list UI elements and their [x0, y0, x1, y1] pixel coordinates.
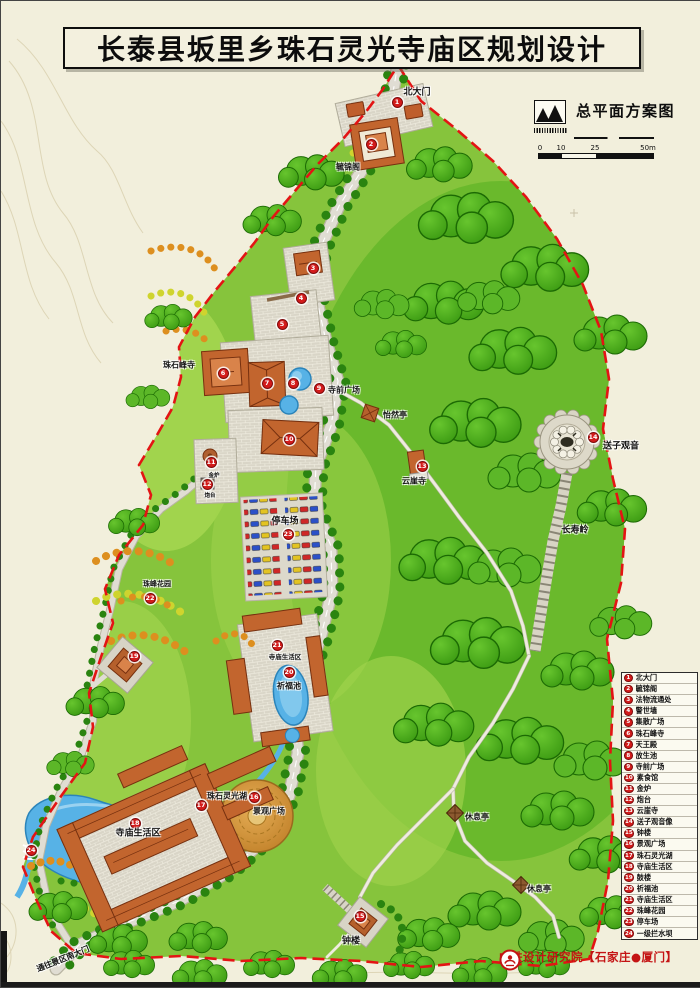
legend-item-number: 11: [624, 785, 634, 794]
scale-bar: 0 10 25 50m: [538, 144, 656, 160]
legend-item-number: 7: [624, 740, 633, 749]
footer: 中铁设计研究院【石家庄●厦门】: [499, 949, 678, 965]
guanyin-statue: [561, 437, 574, 447]
legend-item: 12 炮台: [622, 795, 697, 806]
design-credit: 中铁设计研究院【石家庄●厦门】: [499, 949, 678, 965]
legend-item-label: 珠峰花园: [637, 906, 666, 916]
legend-item: 22 珠峰花园: [622, 906, 697, 917]
legend-item-label: 放生池: [636, 751, 658, 761]
legend-item-number: 10: [624, 774, 634, 783]
north-gate-tower: [404, 104, 423, 120]
legend-item-number: 13: [624, 807, 634, 816]
sheet-title-box: 长泰县坂里乡珠石灵光寺庙区规划设计: [63, 27, 641, 69]
vegetarian-hall: [261, 420, 319, 457]
fawu-building: [294, 250, 323, 275]
scale-bar-segments: [538, 153, 654, 159]
legend-item-label: 天王殿: [636, 740, 658, 750]
legend-item: 3 法物流通处: [622, 695, 697, 706]
legend-item-label: 鼓楼: [637, 873, 651, 883]
legend-item-number: 17: [624, 851, 634, 860]
legend-item: 7 天王殿: [622, 740, 697, 751]
legend-item-number: 6: [624, 729, 633, 738]
legend-item-label: 一级拦水坝: [637, 929, 673, 939]
institute-logo-icon: [534, 100, 566, 124]
legend-item-label: 寺前广场: [636, 762, 665, 772]
page-title: 长泰县坂里乡珠石灵光寺庙区规划设计: [97, 28, 607, 68]
logo-caption: [534, 128, 567, 133]
legend-item-number: 9: [624, 763, 633, 772]
legend-item-number: 1: [624, 674, 633, 683]
scale-tick: 50m: [640, 144, 656, 152]
legend-item: 11 金炉: [622, 784, 697, 795]
legend-item: 21 寺庙生活区: [622, 895, 697, 906]
legend-item: 24 一级拦水坝: [622, 928, 697, 939]
legend-item-label: 珠石灵光湖: [637, 851, 673, 861]
legend-item-label: 毓锦阁: [636, 684, 658, 694]
legend-item-number: 12: [624, 796, 634, 805]
sheet-edge-bottom: [1, 982, 700, 987]
legend-item-label: 金炉: [637, 784, 651, 794]
legend-item: 19 鼓楼: [622, 873, 697, 884]
legend-item-label: 钟楼: [637, 828, 651, 838]
legend-item-label: 停车场: [637, 917, 659, 927]
legend-item: 14 送子观音像: [622, 817, 697, 828]
map-legend: 1 北大门 2 毓锦阁 3 法物流通处 4 警世墙 5 集散广场 6 珠石峰寺 …: [621, 672, 698, 940]
legend-item: 9 寺前广场: [622, 762, 697, 773]
legend-item-number: 4: [624, 707, 633, 716]
legend-item-label: 祈福池: [637, 884, 659, 894]
sheet-edge-left: [1, 931, 7, 987]
legend-item-number: 18: [624, 862, 634, 871]
legend-item-number: 5: [624, 718, 633, 727]
plan-header: 总平面方案图: [534, 100, 694, 139]
legend-item-label: 珠石峰寺: [636, 729, 665, 739]
plan-type-label: 总平面方案图: [576, 100, 675, 121]
legend-item-number: 8: [624, 751, 633, 760]
legend-item-number: 15: [624, 829, 634, 838]
legend-item-number: 19: [624, 873, 634, 882]
legend-item: 18 寺庙生活区: [622, 862, 697, 873]
tianwang-hall: [248, 361, 286, 406]
legend-item-label: 云崖寺: [637, 806, 659, 816]
legend-item-label: 北大门: [636, 673, 658, 683]
legend-item-number: 14: [624, 818, 634, 827]
legend-item: 4 警世墙: [622, 706, 697, 717]
legend-item: 16 景观广场: [622, 839, 697, 850]
legend-item-number: 22: [624, 907, 634, 916]
legend-item: 6 珠石峰寺: [622, 728, 697, 739]
scale-tick: 25: [591, 144, 600, 152]
legend-item-number: 23: [624, 918, 634, 927]
legend-item-label: 送子观音像: [637, 817, 673, 827]
parking-lot: [240, 493, 327, 601]
zhushi-temple: [202, 348, 251, 395]
legend-item: 13 云崖寺: [622, 806, 697, 817]
legend-item-number: 3: [624, 696, 633, 705]
legend-item: 10 素食馆: [622, 773, 697, 784]
legend-item-label: 集散广场: [636, 717, 665, 727]
scale-tick: 10: [557, 144, 566, 152]
legend-item-number: 21: [624, 896, 634, 905]
legend-item: 1 北大门: [622, 673, 697, 684]
guanyin-plaza: [534, 410, 600, 474]
scale-tick: 0: [538, 144, 542, 152]
legend-item: 20 祈福池: [622, 884, 697, 895]
legend-item-label: 寺庙生活区: [637, 895, 673, 905]
yujin-pavilion: [350, 118, 405, 171]
plan-sheet: 长泰县坂里乡珠石灵光寺庙区规划设计 总平面方案图 0 10 25 50m 1 北…: [0, 0, 700, 988]
legend-item: 8 放生池: [622, 751, 697, 762]
legend-item: 2 毓锦阁: [622, 684, 697, 695]
legend-item-number: 2: [624, 685, 633, 694]
legend-item-label: 寺庙生活区: [637, 862, 673, 872]
legend-item-label: 景观广场: [637, 839, 666, 849]
legend-item-label: 警世墙: [636, 706, 658, 716]
legend-item: 17 珠石灵光湖: [622, 851, 697, 862]
legend-item: 5 集散广场: [622, 717, 697, 728]
legend-item-label: 法物流通处: [636, 695, 672, 705]
legend-item-label: 素食馆: [637, 773, 659, 783]
legend-item: 15 钟楼: [622, 828, 697, 839]
legend-item: 23 停车场: [622, 917, 697, 928]
plan-label-rule: [574, 137, 654, 139]
legend-item-label: 炮台: [637, 795, 651, 805]
battery: [201, 478, 214, 489]
legend-item-number: 20: [624, 885, 634, 894]
railway-institute-logo-icon: [499, 949, 521, 971]
legend-item-number: 16: [624, 840, 634, 849]
legend-item-number: 24: [624, 929, 634, 938]
